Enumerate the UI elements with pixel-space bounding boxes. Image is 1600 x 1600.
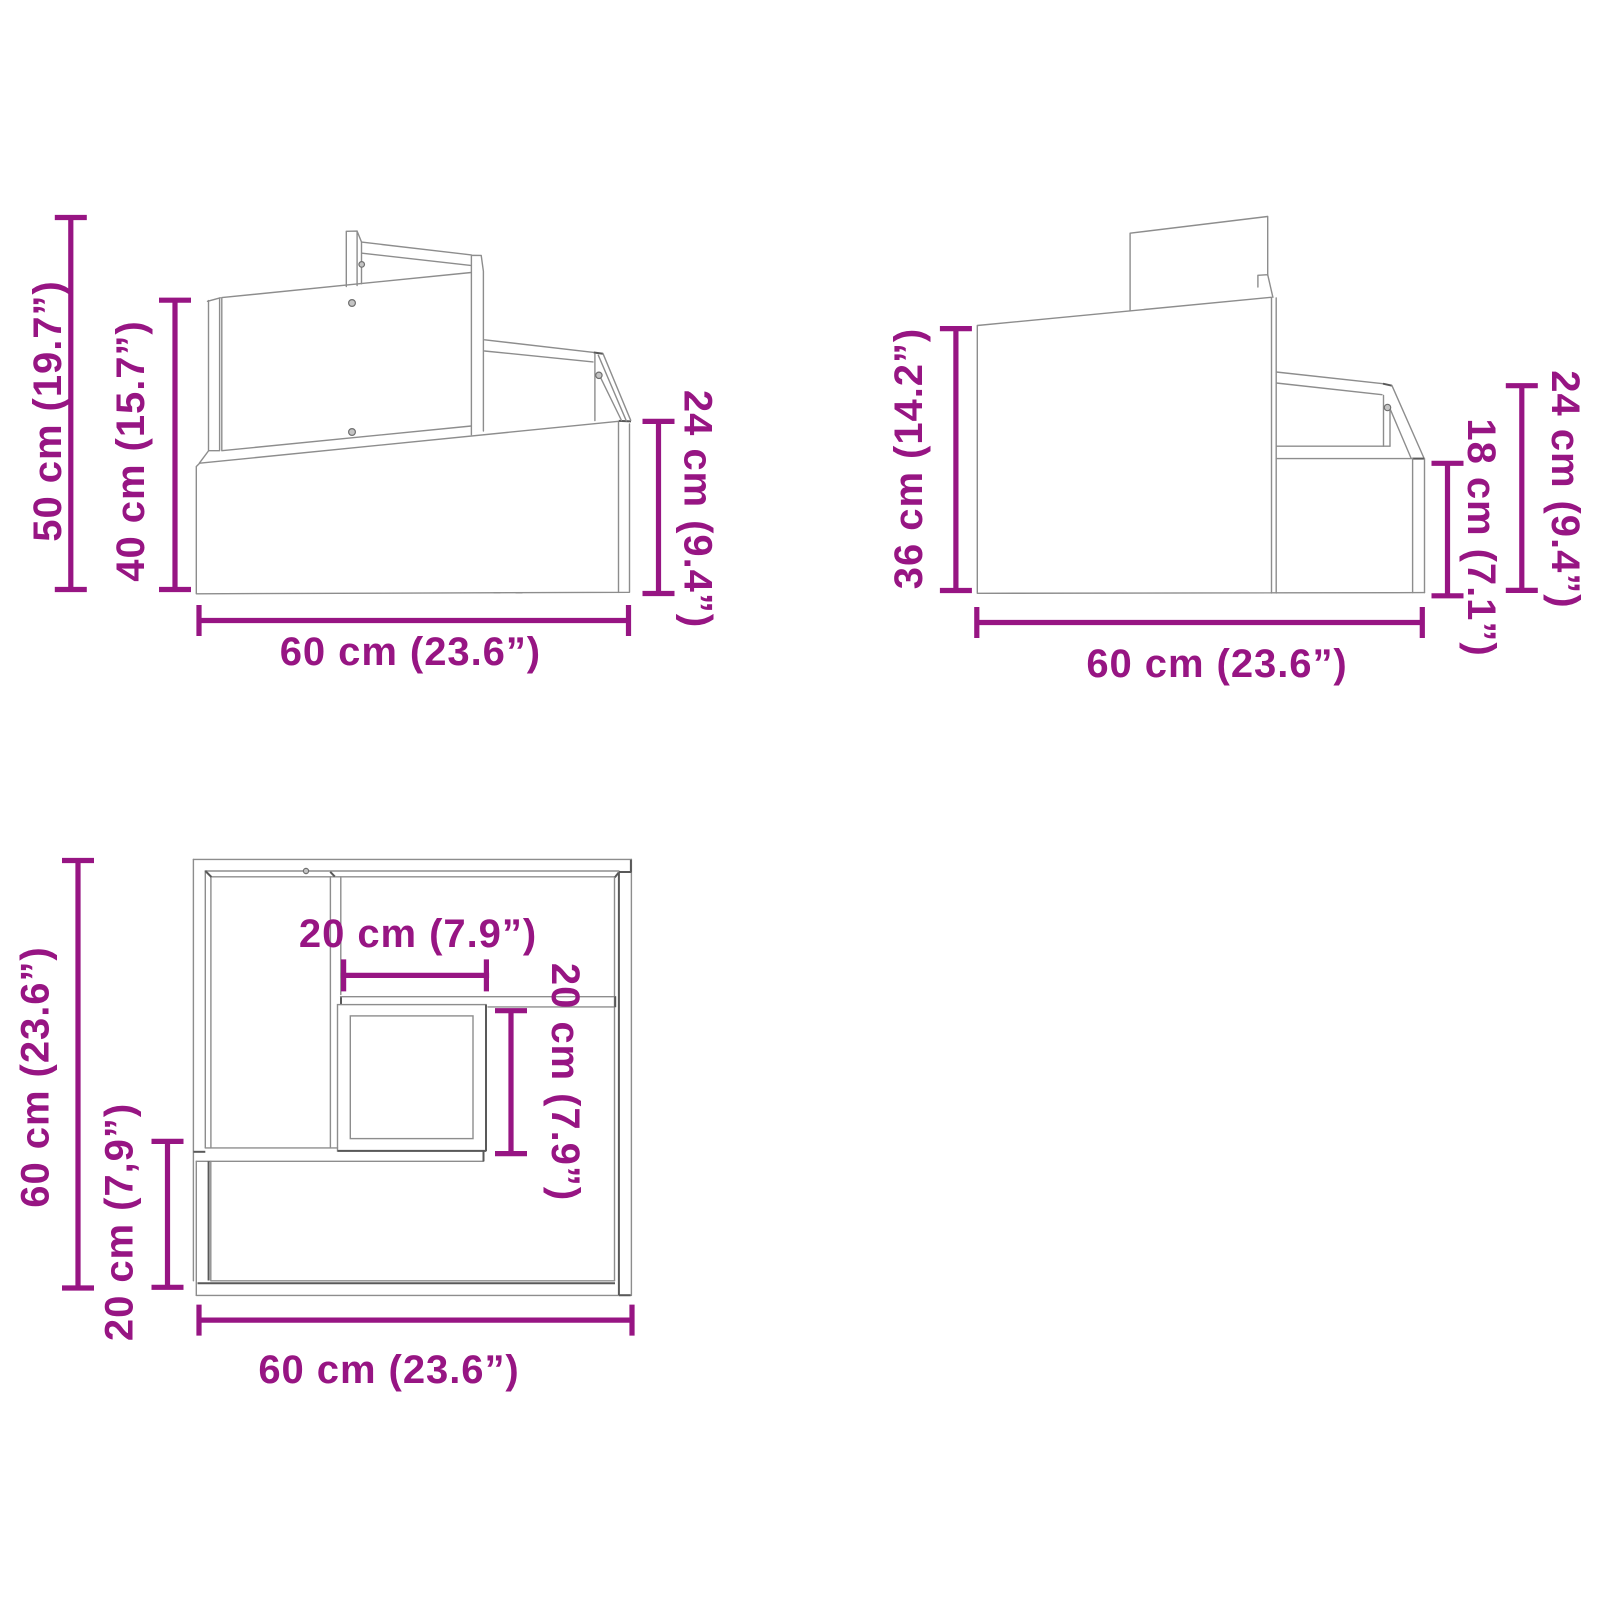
svg-text:24 cm (9.4”): 24 cm (9.4”) <box>676 390 720 628</box>
svg-text:60 cm (23.6”): 60 cm (23.6”) <box>14 946 58 1207</box>
svg-text:20 cm (7,9”): 20 cm (7,9”) <box>98 1103 142 1341</box>
svg-text:40 cm (15.7”): 40 cm (15.7”) <box>109 320 153 581</box>
svg-text:50 cm (19.7”): 50 cm (19.7”) <box>26 280 70 541</box>
svg-text:24 cm (9.4”): 24 cm (9.4”) <box>1543 370 1587 608</box>
svg-text:20 cm (7.9”): 20 cm (7.9”) <box>299 912 537 956</box>
svg-text:60 cm (23.6”): 60 cm (23.6”) <box>280 630 541 674</box>
svg-text:36 cm (14.2”): 36 cm (14.2”) <box>887 328 931 589</box>
svg-text:18 cm (7.1”): 18 cm (7.1”) <box>1459 418 1503 656</box>
svg-text:60 cm (23.6”): 60 cm (23.6”) <box>258 1348 519 1392</box>
svg-text:20 cm (7.9”): 20 cm (7.9”) <box>543 963 587 1201</box>
svg-text:60 cm (23.6”): 60 cm (23.6”) <box>1086 642 1347 686</box>
